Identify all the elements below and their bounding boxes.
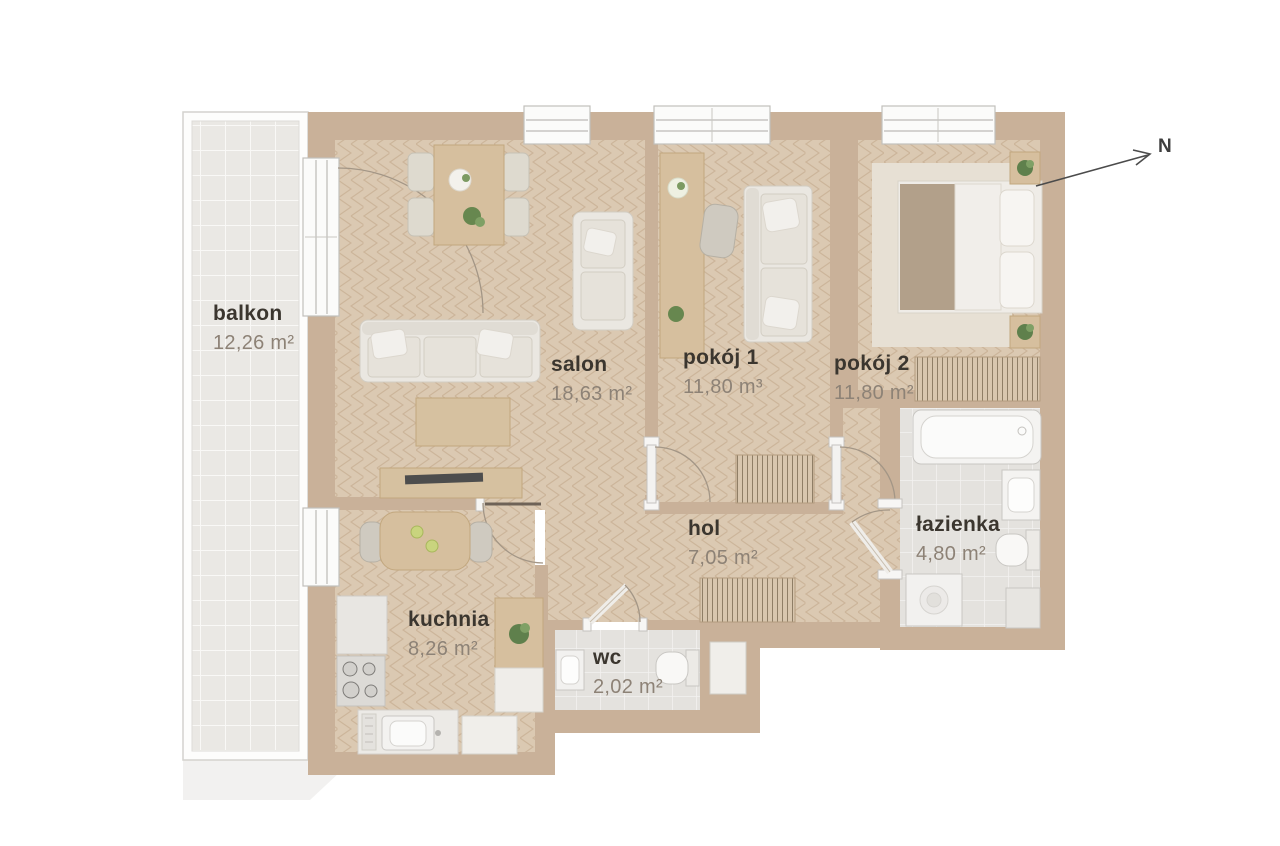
bed-duvet — [955, 184, 1001, 310]
pillow — [476, 328, 514, 360]
kitchen-sink-counter — [358, 710, 458, 754]
dining-chair — [408, 198, 434, 236]
dining-chair — [408, 153, 434, 191]
kitchen-island — [495, 598, 543, 712]
shaft — [462, 716, 517, 754]
pokoj-2-window — [882, 106, 995, 144]
pillow — [370, 329, 408, 360]
stove — [337, 656, 385, 706]
wc-sink — [556, 650, 584, 690]
nightstand-bottom — [1010, 316, 1040, 348]
fridge — [337, 596, 387, 654]
hol-wardrobe — [700, 578, 795, 622]
floor-plan-drawing: N — [0, 0, 1280, 846]
washing-machine — [906, 574, 962, 626]
north-label: N — [1158, 136, 1172, 157]
armchair — [573, 212, 633, 330]
floor-plan-canvas: N balkon 12,26 m² salon 18,63 m² pokój 1… — [0, 0, 1280, 846]
sofa — [360, 320, 540, 382]
toilet — [996, 530, 1040, 570]
bed-blanket — [900, 184, 960, 310]
pokoj-1-wardrobe — [736, 455, 814, 503]
shaft — [1006, 588, 1040, 628]
salon-window — [524, 106, 590, 144]
desk — [660, 153, 704, 358]
bed — [898, 181, 1042, 313]
tv-unit — [380, 468, 522, 498]
bathroom-sink — [1002, 470, 1040, 520]
kuchnia-window — [303, 508, 339, 586]
desk-chair — [699, 203, 740, 259]
pokoj-1-window — [654, 106, 770, 144]
pokoj-1-sofa — [744, 186, 812, 342]
pillow — [762, 197, 801, 232]
dining-chair — [503, 198, 529, 236]
kitchen-chair — [468, 522, 492, 562]
shaft — [710, 642, 746, 694]
wc-toilet — [656, 650, 699, 686]
bed-pillow — [1000, 190, 1034, 246]
plant-icon — [668, 306, 684, 322]
bed-pillow — [1000, 252, 1034, 308]
pokoj-2-wardrobe — [915, 357, 1040, 401]
balcony-floor — [192, 121, 299, 751]
pillow — [762, 296, 800, 331]
bathtub — [913, 410, 1041, 464]
nightstand-top — [1010, 152, 1040, 184]
coffee-table — [416, 398, 510, 446]
dining-chair — [503, 153, 529, 191]
